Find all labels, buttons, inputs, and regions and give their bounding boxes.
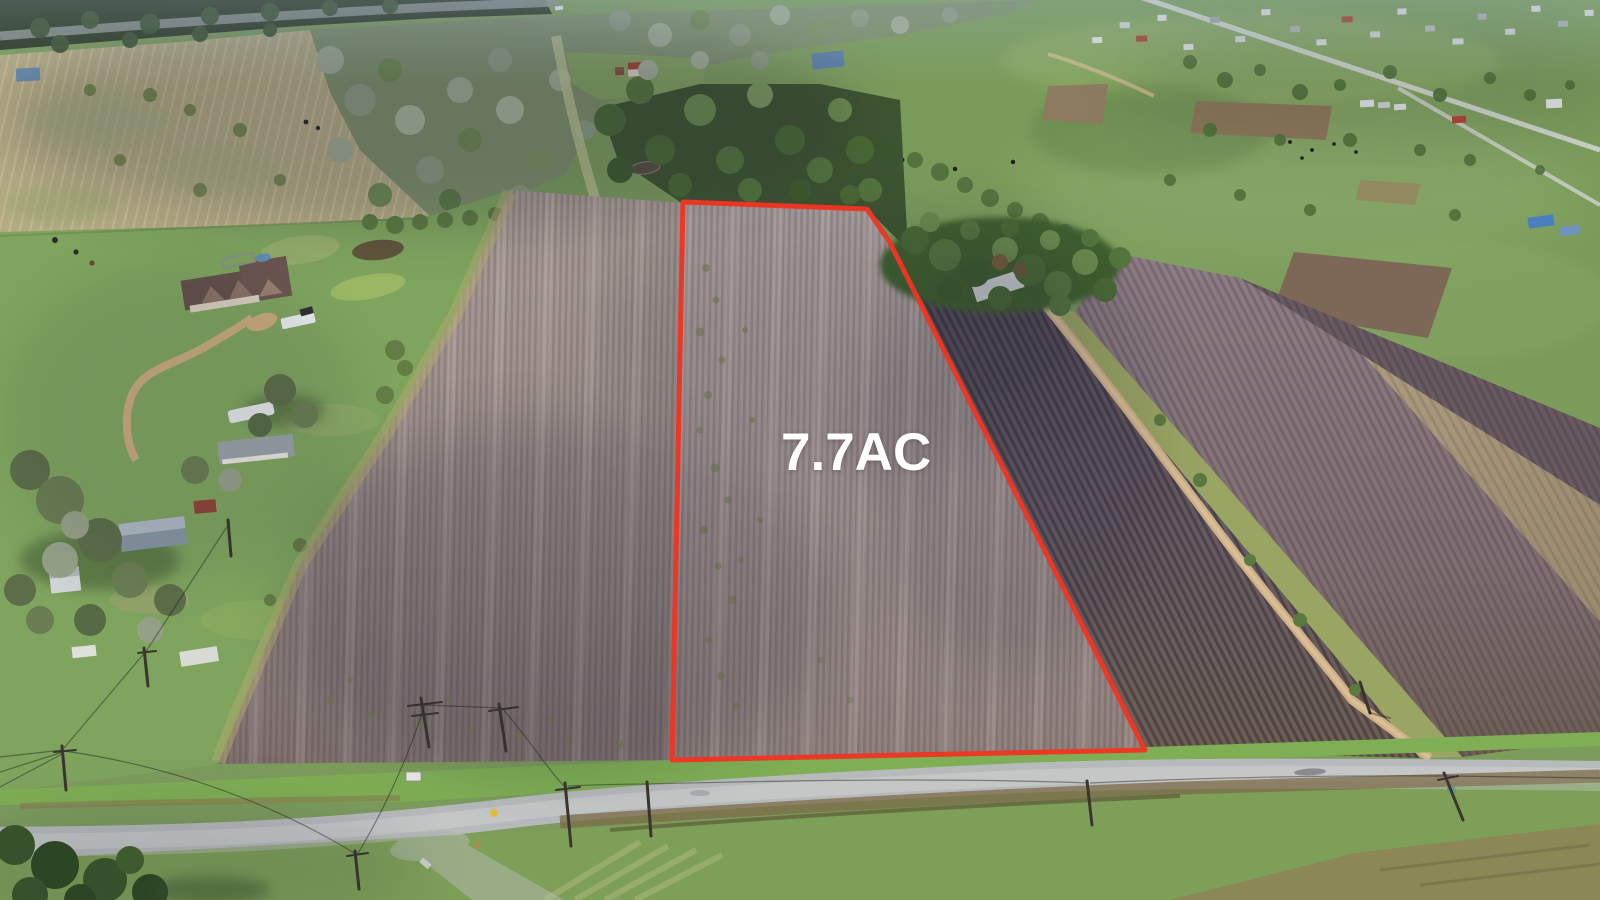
road-sign-white: [406, 772, 421, 781]
acreage-label: 7.7AC: [781, 426, 941, 482]
atmospheric-haze: [0, 0, 1600, 85]
road-marker-yellow: [490, 809, 498, 817]
aerial-photo-scene: 7.7AC: [0, 0, 1600, 900]
